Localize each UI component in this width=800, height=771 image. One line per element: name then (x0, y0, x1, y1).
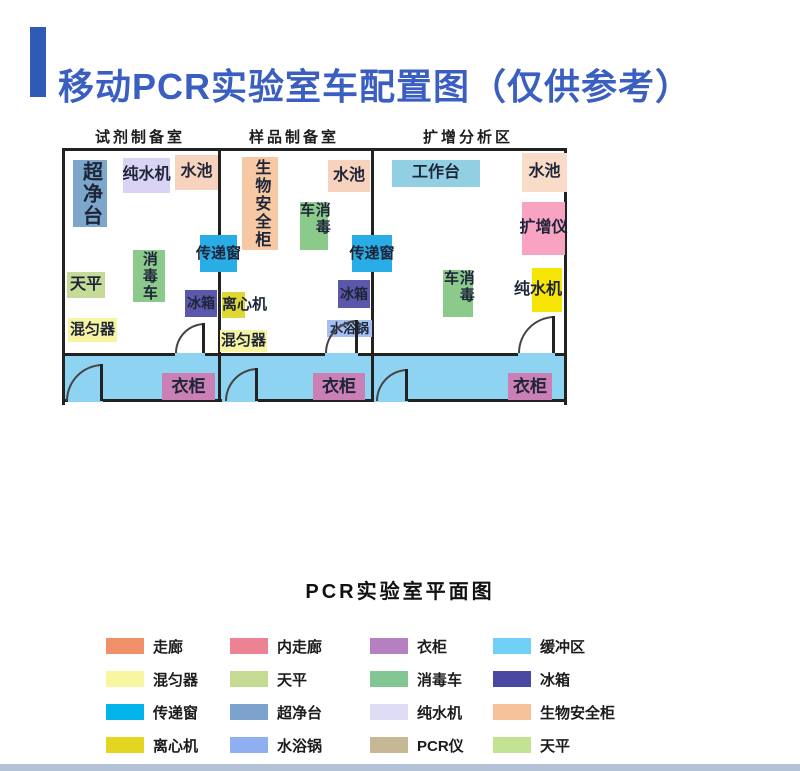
room-label-sample-prep-room: 样品制备室 (204, 126, 384, 144)
legend-label: 走廊 (153, 636, 183, 657)
equipment-fridge: 冰箱 (185, 290, 217, 317)
legend-label: PCR仪 (417, 735, 464, 756)
room1-door-leaf (202, 323, 205, 353)
room3-door-arc (518, 316, 555, 353)
legend-item: 超净台 (230, 704, 370, 720)
legend-label: 内走廊 (277, 636, 322, 657)
legend-item: 衣柜 (370, 638, 493, 654)
equipment-wardrobe: 衣柜 (313, 373, 365, 400)
legend-item: 缓冲区 (493, 638, 663, 654)
equipment-label: 水池 (180, 164, 212, 181)
legend-item: 传递窗 (106, 704, 230, 720)
corridor-top-wall-segment (555, 353, 564, 356)
equipment-mixer: 混匀器 (220, 330, 267, 352)
legend-item: 走廊 (106, 638, 230, 654)
room-divider-wall-1 (218, 151, 221, 402)
legend-swatch (106, 737, 144, 753)
legend: 走廊内走廊衣柜缓冲区混匀器天平消毒车冰箱传递窗超净台纯水机生物安全柜离心机水浴锅… (106, 638, 663, 753)
page-title: 移动PCR实验室车配置图（仅供参考） (58, 58, 758, 110)
equipment-transfer-window: 传递窗 (352, 235, 392, 272)
legend-swatch (493, 737, 531, 753)
equipment-biosafety-cabinet: 生物安全柜 (242, 157, 278, 250)
legend-label: 衣柜 (417, 636, 447, 657)
legend-item: 消毒车 (370, 671, 493, 687)
equipment-label: 冰箱 (187, 296, 215, 311)
room1-door-arc (175, 323, 205, 353)
equipment-clean-bench: 超净台 (73, 160, 107, 227)
legend-item: 生物安全柜 (493, 704, 663, 720)
equipment-label: 工作台 (412, 165, 460, 182)
corridor-top-wall-segment (205, 353, 325, 356)
equipment-disinfection-cart: 消毒车 (300, 202, 328, 250)
legend-swatch (106, 638, 144, 654)
legend-swatch (370, 638, 408, 654)
legend-swatch (370, 737, 408, 753)
legend-item: 内走廊 (230, 638, 370, 654)
legend-title: PCR实验室平面图 (0, 575, 800, 604)
equipment-sink: 水池 (522, 153, 567, 192)
equipment-wardrobe: 衣柜 (162, 373, 215, 400)
legend-label: 缓冲区 (540, 636, 585, 657)
corridor-top-wall-segment (65, 353, 175, 356)
legend-swatch (230, 638, 268, 654)
equipment-workbench: 工作台 (392, 160, 480, 187)
equipment-label: 水池 (528, 164, 560, 181)
room2-door-leaf (355, 320, 358, 353)
equipment-label: 离心机 (222, 297, 267, 313)
room-label-amplification-area: 扩增分析区 (378, 126, 558, 144)
floor-plan: 超净台纯水机水池天平消毒车混匀器冰箱传递窗生物安全柜水池消毒车离心机混匀器冰箱水… (62, 148, 567, 405)
legend-item: 水浴锅 (230, 737, 370, 753)
equipment-sink: 水池 (175, 155, 218, 190)
equipment-water-purifier: 纯水机 (532, 268, 562, 312)
legend-label: 混匀器 (153, 669, 198, 690)
legend-label: 离心机 (153, 735, 198, 756)
equipment-label: 扩增仪 (520, 220, 568, 237)
legend-item: PCR仪 (370, 737, 493, 753)
equipment-pcr-amplifier: 扩增仪 (522, 202, 565, 255)
room3-door-leaf (552, 316, 555, 353)
equipment-label: 消毒车 (141, 251, 157, 302)
legend-label: 超净台 (277, 702, 322, 723)
title-accent-bar (30, 27, 46, 97)
legend-label: 生物安全柜 (540, 702, 615, 723)
equipment-wardrobe: 衣柜 (508, 373, 552, 400)
corridor2-door-leaf (255, 368, 258, 401)
equipment-label: 混匀器 (70, 322, 115, 338)
legend-swatch (370, 671, 408, 687)
legend-label: 冰箱 (540, 669, 570, 690)
floor-plan-inner: 超净台纯水机水池天平消毒车混匀器冰箱传递窗生物安全柜水池消毒车离心机混匀器冰箱水… (65, 151, 564, 402)
legend-swatch (230, 671, 268, 687)
equipment-label: 水池 (333, 168, 365, 185)
equipment-water-purifier: 纯水机 (123, 158, 170, 193)
equipment-label: 天平 (70, 277, 102, 294)
equipment-label: 传递窗 (350, 246, 395, 262)
equipment-transfer-window: 传递窗 (200, 235, 237, 272)
corridor1-door-leaf (100, 364, 103, 401)
equipment-label: 消毒车 (442, 270, 474, 317)
equipment-balance: 天平 (67, 272, 105, 298)
bottom-strip (0, 764, 800, 771)
room-label-reagent-prep-room: 试剂制备室 (50, 126, 230, 144)
legend-label: 水浴锅 (277, 735, 322, 756)
equipment-label: 衣柜 (513, 378, 547, 396)
equipment-label: 衣柜 (322, 378, 356, 396)
legend-swatch (370, 704, 408, 720)
equipment-mixer: 混匀器 (68, 318, 117, 342)
legend-item: 混匀器 (106, 671, 230, 687)
legend-item: 天平 (230, 671, 370, 687)
legend-swatch (230, 737, 268, 753)
equipment-disinfection-cart: 消毒车 (443, 270, 473, 317)
legend-swatch (106, 671, 144, 687)
equipment-label: 消毒车 (298, 202, 330, 250)
equipment-disinfection-cart: 消毒车 (133, 250, 165, 302)
equipment-label: 传递窗 (196, 246, 241, 262)
legend-item: 冰箱 (493, 671, 663, 687)
legend-swatch (493, 638, 531, 654)
equipment-label: 冰箱 (340, 287, 368, 302)
legend-swatch (493, 704, 531, 720)
room-divider-wall-2 (371, 151, 374, 402)
legend-swatch (106, 704, 144, 720)
legend-label: 传递窗 (153, 702, 198, 723)
page: 移动PCR实验室车配置图（仅供参考） 超净台纯水机水池天平消毒车混匀器冰箱传递窗… (0, 0, 800, 771)
legend-swatch (493, 671, 531, 687)
equipment-fridge: 冰箱 (338, 280, 370, 308)
legend-swatch (230, 704, 268, 720)
legend-item: 离心机 (106, 737, 230, 753)
equipment-centrifuge: 离心机 (222, 292, 245, 318)
equipment-sink: 水池 (328, 160, 370, 192)
corridor3-door-leaf (405, 369, 408, 401)
legend-label: 消毒车 (417, 669, 462, 690)
legend-label: 天平 (277, 669, 307, 690)
legend-item: 纯水机 (370, 704, 493, 720)
equipment-label: 纯水机 (123, 167, 171, 184)
legend-label: 天平 (540, 735, 570, 756)
equipment-label: 超净台 (80, 161, 101, 227)
equipment-label: 纯水机 (514, 282, 562, 299)
corridor-top-wall-segment (358, 353, 518, 356)
equipment-label: 混匀器 (221, 333, 266, 349)
legend-label: 纯水机 (417, 702, 462, 723)
legend-item: 天平 (493, 737, 663, 753)
equipment-label: 衣柜 (172, 378, 206, 396)
equipment-label: 生物安全柜 (252, 159, 269, 249)
